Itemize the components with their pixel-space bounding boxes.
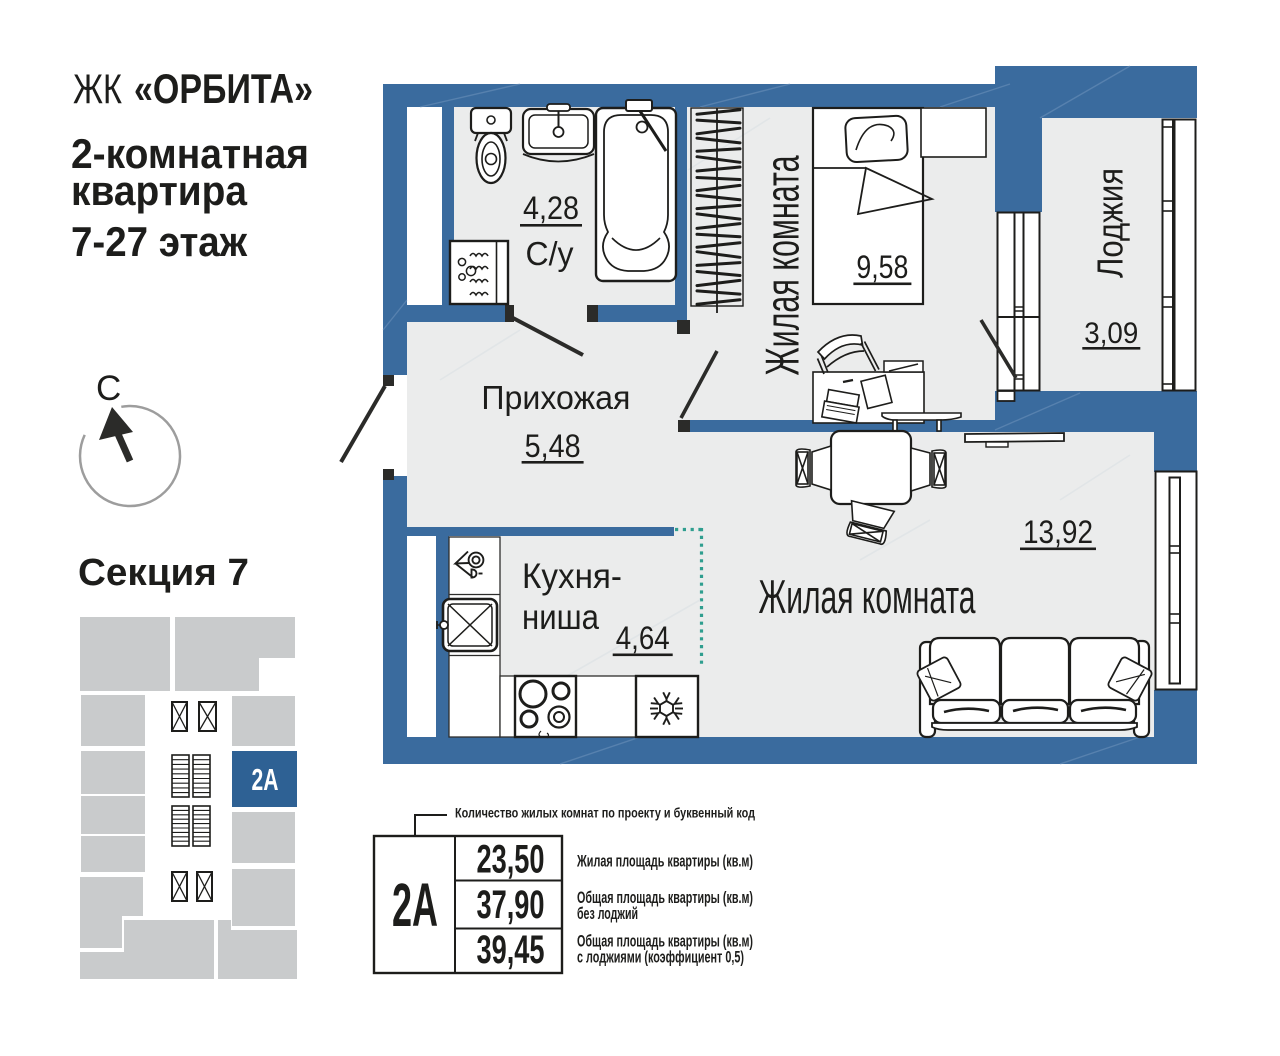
- svg-text:Кухня-: Кухня-: [522, 557, 622, 596]
- svg-text:Секция 7: Секция 7: [78, 552, 249, 594]
- svg-text:ниша: ниша: [522, 598, 599, 637]
- svg-text:ЖК: ЖК: [73, 65, 122, 112]
- svg-text:4,28: 4,28: [523, 190, 579, 226]
- svg-text:Количество жилых комнат по про: Количество жилых комнат по проекту и бук…: [455, 805, 755, 821]
- svg-text:С/у: С/у: [526, 235, 574, 272]
- svg-text:2А: 2А: [392, 871, 438, 939]
- svg-text:Жилая комната: Жилая комната: [756, 155, 809, 376]
- svg-text:7-27 этаж: 7-27 этаж: [71, 218, 248, 265]
- svg-text:С: С: [96, 369, 121, 408]
- svg-text:37,90: 37,90: [477, 883, 545, 927]
- svg-text:Лоджия: Лоджия: [1090, 168, 1131, 278]
- svg-text:«ОРБИТА»: «ОРБИТА»: [134, 65, 313, 112]
- svg-text:3,09: 3,09: [1084, 317, 1138, 350]
- svg-text:Прихожая: Прихожая: [481, 379, 630, 416]
- svg-text:23,50: 23,50: [477, 838, 545, 882]
- svg-text:9,58: 9,58: [856, 249, 908, 285]
- svg-text:2А: 2А: [252, 762, 279, 797]
- svg-text:квартира: квартира: [71, 167, 248, 214]
- svg-text:39,45: 39,45: [477, 928, 545, 972]
- svg-text:4,64: 4,64: [616, 620, 670, 656]
- svg-text:Жилая комната: Жилая комната: [759, 570, 977, 623]
- svg-text:с лоджиями (коэффициент 0,5): с лоджиями (коэффициент 0,5): [577, 948, 744, 967]
- svg-text:5,48: 5,48: [525, 428, 581, 464]
- svg-text:13,92: 13,92: [1023, 514, 1093, 550]
- svg-text:Жилая площадь квартиры (кв.м): Жилая площадь квартиры (кв.м): [576, 852, 753, 871]
- svg-text:без лоджий: без лоджий: [577, 904, 638, 923]
